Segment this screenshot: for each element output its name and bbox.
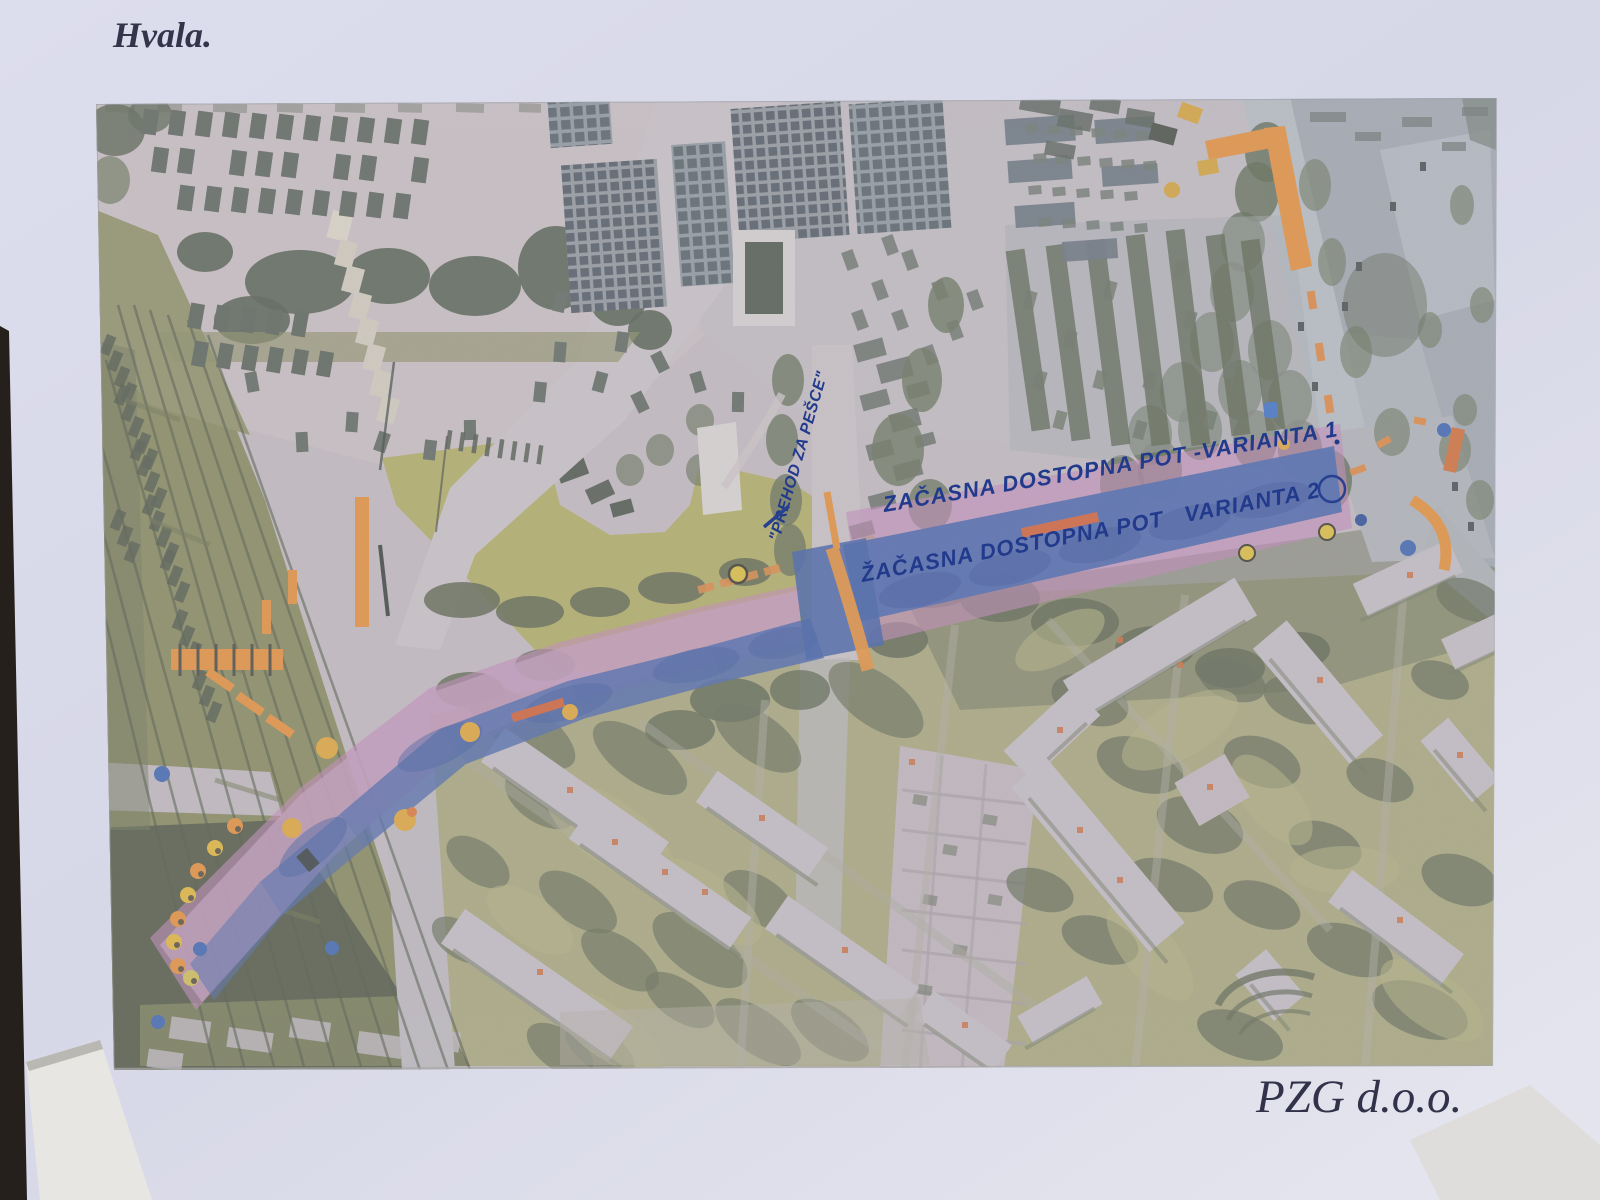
svg-text:Hvala.: Hvala. <box>112 15 212 55</box>
svg-text:PZG d.o.o.: PZG d.o.o. <box>1255 1071 1462 1123</box>
